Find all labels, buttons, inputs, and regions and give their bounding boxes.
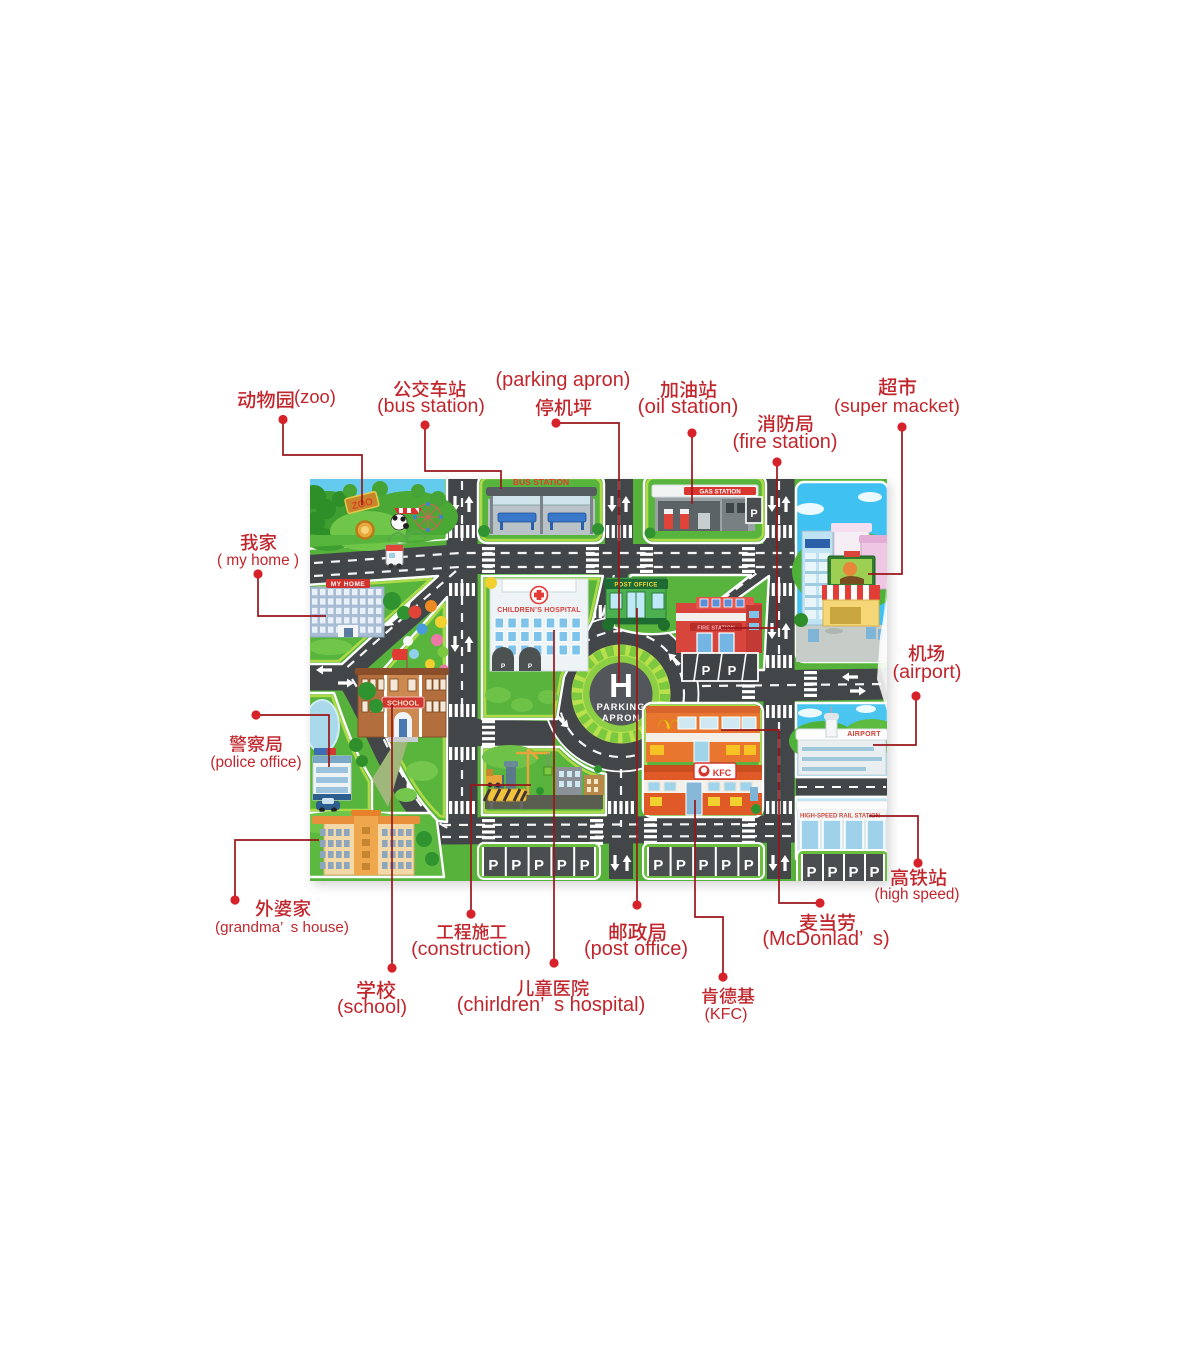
svg-text:P: P <box>511 857 521 874</box>
svg-text:PARKING: PARKING <box>597 702 646 712</box>
svg-text:MY HOME: MY HOME <box>331 581 366 588</box>
svg-text:P: P <box>528 663 533 670</box>
svg-text:P: P <box>721 857 731 874</box>
svg-text:P: P <box>488 857 498 874</box>
svg-text:P: P <box>557 857 567 874</box>
svg-text:HIGH-SPEED RAIL STATION: HIGH-SPEED RAIL STATION <box>800 814 880 820</box>
svg-text:CHILDREN’S HOSPITAL: CHILDREN’S HOSPITAL <box>497 607 581 614</box>
svg-text:P: P <box>750 508 757 520</box>
svg-text:P: P <box>580 857 590 874</box>
svg-text:P: P <box>676 857 686 874</box>
svg-text:P: P <box>848 864 858 881</box>
svg-text:P: P <box>698 857 708 874</box>
svg-text:P: P <box>744 857 754 874</box>
svg-text:P: P <box>653 857 663 874</box>
svg-text:POST OFFICE: POST OFFICE <box>614 583 657 589</box>
svg-text:BUS STATION: BUS STATION <box>513 479 569 487</box>
svg-text:APRON: APRON <box>602 713 640 723</box>
svg-text:P: P <box>806 864 816 881</box>
svg-text:P: P <box>827 864 837 881</box>
svg-text:SCHOOL: SCHOOL <box>387 699 420 708</box>
svg-text:GAS STATION: GAS STATION <box>699 489 741 496</box>
svg-text:P: P <box>501 663 506 670</box>
svg-text:FIRE STATION: FIRE STATION <box>697 626 734 632</box>
svg-text:P: P <box>702 663 711 678</box>
svg-text:AIRPORT: AIRPORT <box>847 731 881 738</box>
svg-text:P: P <box>534 857 544 874</box>
svg-text:P: P <box>869 864 879 881</box>
svg-text:H: H <box>609 667 633 704</box>
svg-text:KFC: KFC <box>713 768 732 778</box>
